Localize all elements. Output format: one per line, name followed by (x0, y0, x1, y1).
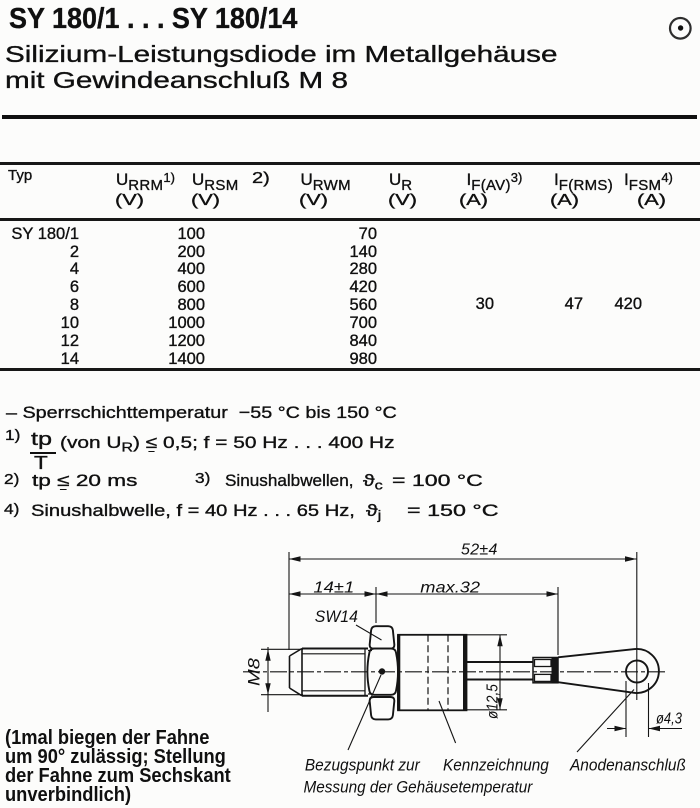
svg-text:SW14: SW14 (315, 608, 358, 626)
svg-text:14±1: 14±1 (313, 578, 354, 597)
svg-text:M8: M8 (244, 657, 263, 686)
svg-text:Messung der Gehäusetemperatur: Messung der Gehäusetemperatur (304, 778, 533, 797)
svg-text:Kennzeichnung: Kennzeichnung (443, 756, 549, 775)
svg-text:52±4: 52±4 (461, 542, 498, 559)
svg-text:ø12,5: ø12,5 (485, 683, 502, 719)
svg-text:Bezugspunkt zur: Bezugspunkt zur (305, 756, 420, 775)
svg-text:max.32: max.32 (420, 578, 480, 597)
svg-text:ø4,3: ø4,3 (656, 710, 682, 728)
svg-text:Anodenanschluß: Anodenanschluß (569, 756, 686, 775)
